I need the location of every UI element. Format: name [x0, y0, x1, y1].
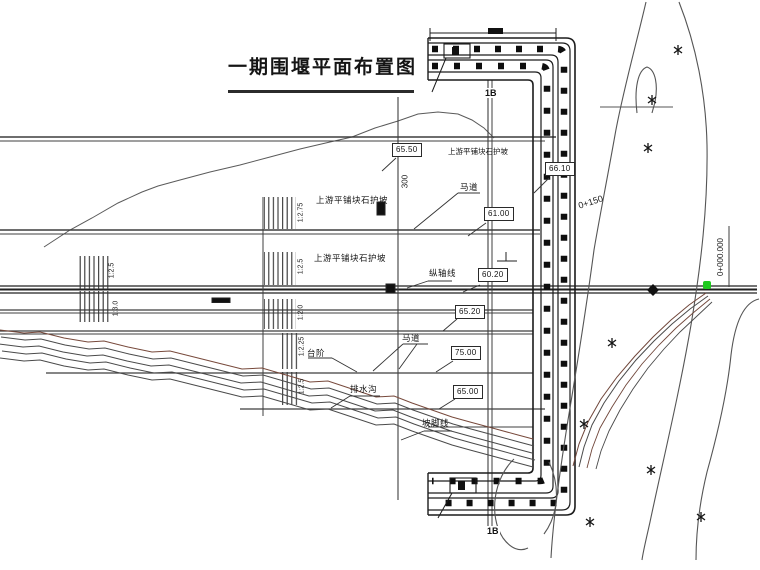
- elevation-box-7: 65.00: [453, 385, 483, 399]
- slope-ratio-4: 1:2.25: [299, 332, 306, 362]
- label-upstream-slope-protection-2: 上游平铺块石护坡: [314, 254, 386, 263]
- chainage-zero: 0+000.000: [717, 227, 725, 287]
- elevation-box-3: 61.00: [484, 207, 514, 221]
- label-slope-toe-line: 坡脚线: [422, 419, 449, 428]
- elevation-box-4: 60.20: [478, 268, 508, 282]
- elevation-box-5: 65.20: [455, 305, 485, 319]
- elevation-box-1: 65.50: [392, 143, 422, 157]
- slope-ratio-3: 1:2.0: [298, 298, 305, 328]
- slope-ratio-5: 1:2.5: [299, 372, 306, 402]
- section-marker-bottom: 1B: [486, 526, 500, 536]
- crest-width-dimension: 300: [401, 170, 410, 194]
- label-upstream-slope-protection-1: 上游平铺块石护坡: [316, 196, 388, 205]
- label-upstream-slope-protection-3: 上游平铺块石护坡: [448, 148, 508, 156]
- slope-ratio-6: 1:2.5: [109, 256, 116, 286]
- title-underline: [228, 90, 414, 93]
- station-zero-marker: [703, 281, 711, 289]
- slope-ratio-7: 1:3.0: [113, 294, 120, 324]
- label-steps: 台阶: [307, 349, 325, 358]
- drawing-title: 一期围堰平面布置图: [228, 52, 417, 79]
- label-berm-1: 马道: [460, 183, 478, 192]
- label-berm-2: 马道: [402, 334, 420, 343]
- label-axis-line: 纵轴线: [429, 269, 456, 278]
- section-marker-top: 1B: [484, 88, 498, 98]
- label-drainage-ditch: 排水沟: [350, 385, 377, 394]
- slope-ratio-1: 1:2.75: [298, 198, 305, 228]
- slope-ratio-2: 1:2.5: [298, 252, 305, 282]
- elevation-box-2: 66.10: [545, 162, 575, 176]
- cofferdam-plan-drawing: 一期围堰平面布置图 上游平铺块石护坡 上游平铺块石护坡 上游平铺块石护坡 马道 …: [0, 0, 760, 570]
- benchmark-icon: [497, 252, 517, 261]
- elevation-box-6: 75.00: [451, 346, 481, 360]
- right-bank-band: [573, 293, 712, 469]
